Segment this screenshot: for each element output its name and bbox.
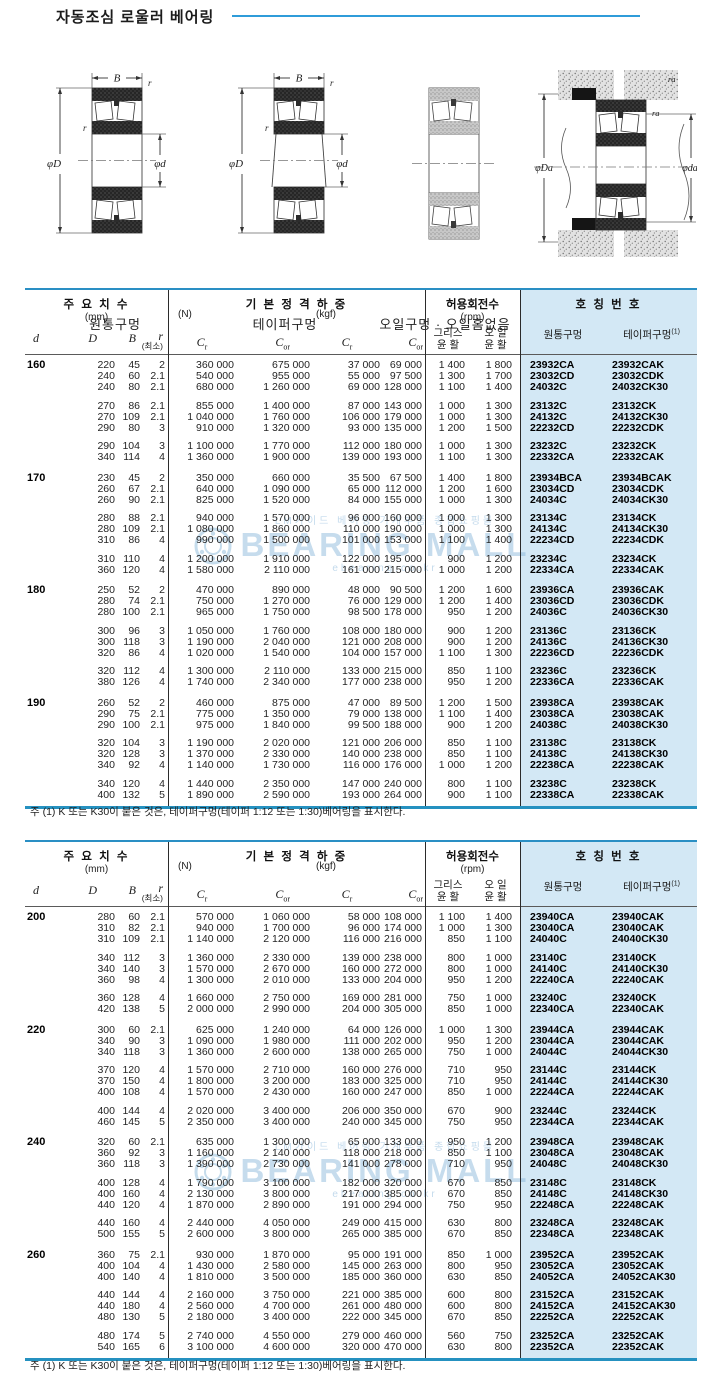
col-label-oil: 오 일윤 활 xyxy=(471,880,520,903)
cell-D: 290 xyxy=(55,423,115,434)
cell-d xyxy=(25,1106,55,1117)
cell-oil-rpm: 1 000 xyxy=(471,1047,520,1058)
cell-cr-kgf: 98 500 xyxy=(312,607,382,618)
cell-cr-n: 965 000 xyxy=(168,607,236,618)
cell-cylindrical-bore-number: 24032C xyxy=(520,382,606,393)
cell-d xyxy=(25,1218,55,1229)
cell-cor-kgf: 188 000 xyxy=(382,720,425,731)
cell-cor-n: 2 600 000 xyxy=(236,1047,312,1058)
cell-tapered-bore-number: 22348CAK xyxy=(606,1229,697,1240)
cell-cr-kgf: 265 000 xyxy=(312,1229,382,1240)
cell-oil-rpm: 1 200 xyxy=(471,565,520,576)
cell-d xyxy=(25,964,55,975)
cell-d xyxy=(25,596,55,607)
cell-cylindrical-bore-number: 24034C xyxy=(520,495,606,506)
svg-text:φD: φD xyxy=(47,158,61,170)
table-header: 주 요 치 수 (mm) d D B r(최소) 기 본 정 격 하 중 (N)… xyxy=(25,842,697,907)
cell-cor-n: 2 430 000 xyxy=(236,1087,312,1098)
cell-cor-kgf: 204 000 xyxy=(382,975,425,986)
cell-B: 109 xyxy=(115,934,140,945)
number-title: 호 칭 번 호 xyxy=(520,296,697,312)
svg-text:r: r xyxy=(148,78,152,88)
cell-B: 155 xyxy=(115,1229,140,1240)
cell-oil-rpm: 1 400 xyxy=(471,382,520,393)
cell-B: 80 xyxy=(115,423,140,434)
cell-cr-kgf: 93 000 xyxy=(312,423,382,434)
cell-tapered-bore-number: 22236CDK xyxy=(606,648,697,659)
col-label-cr-n: Cr xyxy=(168,335,236,351)
size-group-d240: 240320602.1635 0001 300 00065 000133 000… xyxy=(25,1137,697,1241)
cell-tapered-bore-number: 22232CDK xyxy=(606,423,697,434)
bearing-table-2: 주 요 치 수 (mm) d D B r(최소) 기 본 정 격 하 중 (N)… xyxy=(25,840,697,1361)
cell-grease-rpm: 750 xyxy=(425,1200,471,1211)
cell-oil-rpm: 850 xyxy=(471,1272,520,1283)
cell-D: 460 xyxy=(55,1117,115,1128)
cell-oil-rpm: 1 000 xyxy=(471,1004,520,1015)
cell-cor-kgf: 345 000 xyxy=(382,1312,425,1323)
header-dimensions: 주 요 치 수 (mm) d D B r(최소) xyxy=(25,290,168,354)
table-row: 3208641 020 0001 540 000104 000157 0001 … xyxy=(25,648,697,659)
header-part-numbers: 호 칭 번 호 원통구멍 테이퍼구멍(1) xyxy=(520,290,697,354)
column-divider xyxy=(425,842,426,1358)
cell-cr-n: 1 140 000 xyxy=(168,934,236,945)
footnote: 주 (1) K 또는 K30이 붙은 것은, 테이퍼구멍(테이퍼 1:12 또는… xyxy=(30,804,405,819)
svg-text:r: r xyxy=(83,123,87,133)
cell-B: 118 xyxy=(115,1047,140,1058)
col-label-B: B xyxy=(115,883,140,903)
col-label-cylindrical-bore: 원통구멍 xyxy=(520,327,606,342)
cell-oil-rpm: 850 xyxy=(471,1229,520,1240)
cell-tapered-bore-number: 22238CAK xyxy=(606,760,697,771)
speed-title: 허용회전수 xyxy=(425,848,520,864)
cell-cor-n: 2 890 000 xyxy=(236,1200,312,1211)
cell-cr-n: 1 570 000 xyxy=(168,1087,236,1098)
col-label-cor-kgf: Cor xyxy=(382,335,425,351)
cell-d xyxy=(25,1301,55,1312)
size-group-d200: 200280602.1570 0001 060 00058 000108 000… xyxy=(25,912,697,1016)
cell-oil-rpm: 1 200 xyxy=(471,607,520,618)
cell-cor-kgf: 305 000 xyxy=(382,1004,425,1015)
size-group-d190: 190260522460 000875 00047 00089 5001 200… xyxy=(25,698,697,802)
cell-cor-n: 1 520 000 xyxy=(236,495,312,506)
cell-grease-rpm: 630 xyxy=(425,1342,471,1353)
cell-r: 5 xyxy=(140,1004,168,1015)
cell-cr-kgf: 320 000 xyxy=(312,1342,382,1353)
cell-cr-n: 1 740 000 xyxy=(168,677,236,688)
cell-oil-rpm: 1 200 xyxy=(471,720,520,731)
cell-cr-n: 1 140 000 xyxy=(168,760,236,771)
cell-grease-rpm: 670 xyxy=(425,1229,471,1240)
cell-cylindrical-bore-number: 22336CA xyxy=(520,677,606,688)
cell-oil-rpm: 950 xyxy=(471,1200,520,1211)
cell-d xyxy=(25,1312,55,1323)
cell-r: 4 xyxy=(140,1272,168,1283)
header-part-numbers: 호 칭 번 호 원통구멍 테이퍼구멍(1) xyxy=(520,842,697,906)
cell-grease-rpm: 1 000 xyxy=(425,565,471,576)
cell-cr-n: 1 870 000 xyxy=(168,1200,236,1211)
row-subgroup: 280882.1940 0001 570 00096 000160 0001 0… xyxy=(25,513,697,547)
row-subgroup: 32011241 300 0002 110 000133 000215 0008… xyxy=(25,666,697,688)
bearing-table-1: 주 요 치 수 (mm) d D B r(최소) 기 본 정 격 하 중 (N)… xyxy=(25,288,697,809)
row-subgroup: 36012841 660 0002 750 000169 000281 0007… xyxy=(25,993,697,1015)
cell-grease-rpm: 950 xyxy=(425,607,471,618)
cell-cor-n: 2 120 000 xyxy=(236,934,312,945)
cell-cr-kgf: 160 000 xyxy=(312,1087,382,1098)
table-row: 36011831 390 0002 730 000141 000278 0007… xyxy=(25,1159,697,1170)
cell-D: 360 xyxy=(55,1159,115,1170)
cell-cylindrical-bore-number: 24040C xyxy=(520,934,606,945)
cell-B: 90 xyxy=(115,495,140,506)
cell-D: 280 xyxy=(55,607,115,618)
cell-grease-rpm: 630 xyxy=(425,1272,471,1283)
table-row: 260902.1825 0001 520 00084 000155 0001 0… xyxy=(25,495,697,506)
cell-cr-kgf: 185 000 xyxy=(312,1272,382,1283)
row-subgroup: 3009631 050 0001 760 000108 000180 00090… xyxy=(25,626,697,660)
cell-d xyxy=(25,554,55,565)
cell-oil-rpm: 850 xyxy=(471,1312,520,1323)
cell-d xyxy=(25,535,55,546)
cell-oil-rpm: 950 xyxy=(471,1159,520,1170)
cell-r: 3 xyxy=(140,1047,168,1058)
cell-B: 86 xyxy=(115,535,140,546)
cell-D: 400 xyxy=(55,790,115,801)
col-label-d: d xyxy=(25,331,55,351)
cell-cylindrical-bore-number: 24044C xyxy=(520,1047,606,1058)
bearing-diagram-cylindrical-bore-icon: B φD xyxy=(40,68,190,253)
header-load-ratings: 기 본 정 격 하 중 (N) (kgf) Cr Cor Cr Cor xyxy=(168,290,425,354)
cell-cylindrical-bore-number: 22332CA xyxy=(520,452,606,463)
unit-newton: (N) xyxy=(178,861,192,872)
cell-B: 98 xyxy=(115,975,140,986)
cell-tapered-bore-number: 24038CK30 xyxy=(606,720,697,731)
col-label-D: D xyxy=(55,883,115,903)
cell-d xyxy=(25,401,55,412)
cell-cr-n: 1 360 000 xyxy=(168,452,236,463)
dims-unit: (mm) xyxy=(25,864,168,875)
cell-cor-kgf: 360 000 xyxy=(382,1272,425,1283)
row-subgroup: 34011231 360 0002 330 000139 000238 0008… xyxy=(25,953,697,987)
cell-d xyxy=(25,1047,55,1058)
cell-cr-kgf: 191 000 xyxy=(312,1200,382,1211)
col-label-D: D xyxy=(55,331,115,351)
cell-tapered-bore-number: 22234CDK xyxy=(606,535,697,546)
row-subgroup: 29010431 100 0001 770 000112 000180 0001… xyxy=(25,441,697,463)
cell-d xyxy=(25,1272,55,1283)
cell-cor-n: 1 540 000 xyxy=(236,648,312,659)
cell-cr-n: 910 000 xyxy=(168,423,236,434)
table-row: 290803910 0001 320 00093 000135 0001 200… xyxy=(25,423,697,434)
cell-d: 260 xyxy=(25,1250,55,1261)
col-label-oil: 오 일윤 활 xyxy=(471,328,520,351)
unit-newton: (N) xyxy=(178,309,192,320)
cell-d xyxy=(25,607,55,618)
cell-r: 4 xyxy=(140,760,168,771)
cell-r: 2.1 xyxy=(140,495,168,506)
cell-d xyxy=(25,923,55,934)
cell-cor-n: 1 320 000 xyxy=(236,423,312,434)
cell-cr-kgf: 99 500 xyxy=(312,720,382,731)
cell-grease-rpm: 710 xyxy=(425,1159,471,1170)
cell-cylindrical-bore-number: 22348CA xyxy=(520,1229,606,1240)
cell-cr-kgf: 141 000 xyxy=(312,1159,382,1170)
cell-r: 4 xyxy=(140,975,168,986)
cell-B: 126 xyxy=(115,677,140,688)
table-row: 2901002.1975 0001 840 00099 500188 00090… xyxy=(25,720,697,731)
col-label-cylindrical-bore: 원통구멍 xyxy=(520,879,606,894)
row-subgroup: 31011041 200 0001 910 000122 000195 0009… xyxy=(25,554,697,576)
table-header: 주 요 치 수 (mm) d D B r(최소) 기 본 정 격 하 중 (N)… xyxy=(25,290,697,355)
col-label-tapered-bore: 테이퍼구멍(1) xyxy=(606,327,697,342)
cell-cor-n: 3 400 000 xyxy=(236,1312,312,1323)
size-group-d170: 170230452350 000660 00035 50067 5001 400… xyxy=(25,473,697,577)
cell-cr-kgf: 133 000 xyxy=(312,975,382,986)
cell-d xyxy=(25,1065,55,1076)
svg-text:φd: φd xyxy=(336,158,348,170)
cell-r: 5 xyxy=(140,1117,168,1128)
cell-d xyxy=(25,934,55,945)
cell-d: 180 xyxy=(25,585,55,596)
cell-D: 340 xyxy=(55,760,115,771)
cell-B: 86 xyxy=(115,648,140,659)
table-row: 40010841 570 0002 430 000160 000247 0008… xyxy=(25,1087,697,1098)
cell-cylindrical-bore-number: 22352CA xyxy=(520,1342,606,1353)
cell-oil-rpm: 1 300 xyxy=(471,452,520,463)
cell-cylindrical-bore-number: 22232CD xyxy=(520,423,606,434)
cell-grease-rpm: 750 xyxy=(425,1047,471,1058)
cell-cor-n: 1 260 000 xyxy=(236,382,312,393)
cell-r: 4 xyxy=(140,565,168,576)
cell-d xyxy=(25,382,55,393)
cell-cylindrical-bore-number: 22248CA xyxy=(520,1200,606,1211)
cell-cor-n: 1 900 000 xyxy=(236,452,312,463)
cell-cor-n: 2 340 000 xyxy=(236,677,312,688)
svg-text:ra: ra xyxy=(668,74,676,84)
cell-d xyxy=(25,371,55,382)
cell-D: 540 xyxy=(55,1342,115,1353)
cell-cr-n: 1 810 000 xyxy=(168,1272,236,1283)
cell-tapered-bore-number: 24036CK30 xyxy=(606,607,697,618)
cell-r: 4 xyxy=(140,648,168,659)
cell-cor-kgf: 155 000 xyxy=(382,495,425,506)
cell-cor-kgf: 294 000 xyxy=(382,1200,425,1211)
cell-d xyxy=(25,1087,55,1098)
table-row: 48013052 180 0003 400 000222 000345 0006… xyxy=(25,1312,697,1323)
cell-cr-n: 2 180 000 xyxy=(168,1312,236,1323)
table-row: 3609841 300 0002 010 000133 000204 00095… xyxy=(25,975,697,986)
cell-cr-kgf: 116 000 xyxy=(312,934,382,945)
cell-D: 340 xyxy=(55,452,115,463)
svg-text:φDa: φDa xyxy=(535,163,553,174)
unit-kgf: (kgf) xyxy=(316,309,336,320)
cell-cr-kgf: 116 000 xyxy=(312,760,382,771)
cell-cylindrical-bore-number: 24038C xyxy=(520,720,606,731)
cell-cor-n: 2 110 000 xyxy=(236,565,312,576)
cell-tapered-bore-number: 22252CAK xyxy=(606,1312,697,1323)
cell-d xyxy=(25,495,55,506)
cell-cr-n: 1 020 000 xyxy=(168,648,236,659)
cell-tapered-bore-number: 22240CAK xyxy=(606,975,697,986)
cell-d xyxy=(25,1159,55,1170)
cell-cor-kgf: 216 000 xyxy=(382,934,425,945)
cell-tapered-bore-number: 22338CAK xyxy=(606,790,697,801)
cell-grease-rpm: 670 xyxy=(425,1312,471,1323)
column-divider xyxy=(520,290,521,806)
cell-d xyxy=(25,953,55,964)
cell-cr-n: 1 890 000 xyxy=(168,790,236,801)
cell-cor-n: 2 590 000 xyxy=(236,790,312,801)
cell-r: 4 xyxy=(140,535,168,546)
cell-r: 4 xyxy=(140,452,168,463)
cell-B: 140 xyxy=(115,1272,140,1283)
cell-cor-kgf: 385 000 xyxy=(382,1229,425,1240)
svg-text:r: r xyxy=(265,123,269,133)
cell-cr-kgf: 204 000 xyxy=(312,1004,382,1015)
cell-cylindrical-bore-number: 22338CA xyxy=(520,790,606,801)
cell-cor-kgf: 176 000 xyxy=(382,760,425,771)
cell-B: 165 xyxy=(115,1342,140,1353)
cell-grease-rpm: 1 200 xyxy=(425,423,471,434)
cell-r: 4 xyxy=(140,677,168,688)
col-label-cr-n: Cr xyxy=(168,887,236,903)
svg-text:φD: φD xyxy=(229,158,243,170)
cell-cr-kgf: 69 000 xyxy=(312,382,382,393)
cell-B: 114 xyxy=(115,452,140,463)
cell-d xyxy=(25,1004,55,1015)
col-label-grease: 그리스윤 활 xyxy=(425,328,471,351)
cell-cor-kgf: 345 000 xyxy=(382,1117,425,1128)
column-divider xyxy=(168,290,169,806)
cell-tapered-bore-number: 22334CAK xyxy=(606,565,697,576)
cell-cor-kgf: 264 000 xyxy=(382,790,425,801)
cell-oil-rpm: 1 400 xyxy=(471,535,520,546)
cell-D: 380 xyxy=(55,677,115,688)
dims-title: 주 요 치 수 xyxy=(25,848,168,864)
cell-tapered-bore-number: 24040CK30 xyxy=(606,934,697,945)
cell-d xyxy=(25,666,55,677)
cell-B: 138 xyxy=(115,1004,140,1015)
cell-cylindrical-bore-number: 22340CA xyxy=(520,1004,606,1015)
cell-r: 6 xyxy=(140,1342,168,1353)
cell-D: 500 xyxy=(55,1229,115,1240)
cell-grease-rpm: 900 xyxy=(425,720,471,731)
cell-cr-n: 1 390 000 xyxy=(168,1159,236,1170)
table-row: 3409241 140 0001 730 000116 000176 0001 … xyxy=(25,760,697,771)
cell-cor-n: 2 990 000 xyxy=(236,1004,312,1015)
cell-cor-kgf: 470 000 xyxy=(382,1342,425,1353)
cell-r: 5 xyxy=(140,1229,168,1240)
table-row: 36012041 580 0002 110 000161 000215 0001… xyxy=(25,565,697,576)
row-subgroup: 40012841 790 0003 100 000182 000320 0006… xyxy=(25,1178,697,1212)
cell-d xyxy=(25,1117,55,1128)
cell-cor-kgf: 238 000 xyxy=(382,677,425,688)
cell-B: 145 xyxy=(115,1117,140,1128)
dims-unit: (mm) xyxy=(25,312,168,323)
cell-cr-n: 2 600 000 xyxy=(168,1229,236,1240)
col-label-r: r(최소) xyxy=(140,883,168,903)
cell-cor-n: 3 400 000 xyxy=(236,1117,312,1128)
cell-D: 420 xyxy=(55,1004,115,1015)
cell-cor-n: 3 500 000 xyxy=(236,1272,312,1283)
svg-text:φda: φda xyxy=(682,163,697,174)
table-row: 40014041 810 0003 500 000185 000360 0006… xyxy=(25,1272,697,1283)
cell-cr-n: 2 000 000 xyxy=(168,1004,236,1015)
cell-cr-n: 825 000 xyxy=(168,495,236,506)
cell-D: 320 xyxy=(55,648,115,659)
cell-cylindrical-bore-number: 22238CA xyxy=(520,760,606,771)
cell-d xyxy=(25,749,55,760)
cell-r: 3 xyxy=(140,1159,168,1170)
cell-oil-rpm: 1 200 xyxy=(471,975,520,986)
cell-cor-n: 3 800 000 xyxy=(236,1229,312,1240)
cell-D: 360 xyxy=(55,975,115,986)
row-subgroup: 190260522460 000875 00047 00089 5001 200… xyxy=(25,698,697,732)
row-subgroup: 44016042 440 0004 050 000249 000415 0006… xyxy=(25,1218,697,1240)
cell-oil-rpm: 1 500 xyxy=(471,423,520,434)
table-row: 240802.1680 0001 260 00069 000128 0001 1… xyxy=(25,382,697,393)
cell-B: 132 xyxy=(115,790,140,801)
cell-cylindrical-bore-number: 22334CA xyxy=(520,565,606,576)
row-subgroup: 200280602.1570 0001 060 00058 000108 000… xyxy=(25,912,697,946)
row-subgroup: 48017452 740 0004 550 000279 000460 0005… xyxy=(25,1331,697,1353)
cell-oil-rpm: 1 000 xyxy=(471,1087,520,1098)
cell-r: 2.1 xyxy=(140,382,168,393)
cell-oil-rpm: 1 200 xyxy=(471,760,520,771)
cell-tapered-bore-number: 22248CAK xyxy=(606,1200,697,1211)
cell-d xyxy=(25,412,55,423)
footnote: 주 (1) K 또는 K30이 붙은 것은, 테이퍼구멍(테이퍼 1:12 또는… xyxy=(30,1358,405,1373)
cell-d xyxy=(25,513,55,524)
cell-D: 400 xyxy=(55,1272,115,1283)
cell-d xyxy=(25,709,55,720)
cell-d xyxy=(25,720,55,731)
cell-D: 400 xyxy=(55,1087,115,1098)
table-row: 44012041 870 0002 890 000191 000294 0007… xyxy=(25,1200,697,1211)
table-row: 3101092.11 140 0002 120 000116 000216 00… xyxy=(25,934,697,945)
row-subgroup: 180250522470 000890 00048 00090 5001 200… xyxy=(25,585,697,619)
col-label-cor-n: Cor xyxy=(236,335,312,351)
row-subgroup: 34012041 440 0002 350 000147 000240 0008… xyxy=(25,779,697,801)
table-row: 38012641 740 0002 340 000177 000238 0009… xyxy=(25,677,697,688)
cell-B: 130 xyxy=(115,1312,140,1323)
header-load-ratings: 기 본 정 격 하 중 (N) (kgf) Cr Cor Cr Cor xyxy=(168,842,425,906)
cell-d: 220 xyxy=(25,1025,55,1036)
cell-r: 5 xyxy=(140,790,168,801)
cell-cor-n: 2 730 000 xyxy=(236,1159,312,1170)
cell-cor-kgf: 265 000 xyxy=(382,1047,425,1058)
cell-cor-kgf: 215 000 xyxy=(382,565,425,576)
load-title: 기 본 정 격 하 중 xyxy=(168,848,425,864)
cell-D: 360 xyxy=(55,565,115,576)
table-row: 54016563 100 0004 600 000320 000470 0006… xyxy=(25,1342,697,1353)
cell-d: 190 xyxy=(25,698,55,709)
cell-B: 100 xyxy=(115,720,140,731)
cell-D: 260 xyxy=(55,495,115,506)
cell-D: 290 xyxy=(55,720,115,731)
cell-tapered-bore-number: 22352CAK xyxy=(606,1342,697,1353)
cell-d xyxy=(25,1076,55,1087)
size-group-d180: 180250522470 000890 00048 00090 5001 200… xyxy=(25,585,697,689)
cell-d xyxy=(25,975,55,986)
bearing-diagram-tapered-bore-icon: B φD xyxy=(222,68,372,253)
cell-r: 2.1 xyxy=(140,607,168,618)
table-row: 2801002.1965 0001 750 00098 500178 00095… xyxy=(25,607,697,618)
cell-cr-n: 1 300 000 xyxy=(168,975,236,986)
cell-cor-kgf: 178 000 xyxy=(382,607,425,618)
size-group-d220: 220300602.1625 0001 240 00064 000126 000… xyxy=(25,1025,697,1129)
row-subgroup: 220300602.1625 0001 240 00064 000126 000… xyxy=(25,1025,697,1059)
title-rule xyxy=(232,15,640,17)
cell-B: 108 xyxy=(115,1087,140,1098)
